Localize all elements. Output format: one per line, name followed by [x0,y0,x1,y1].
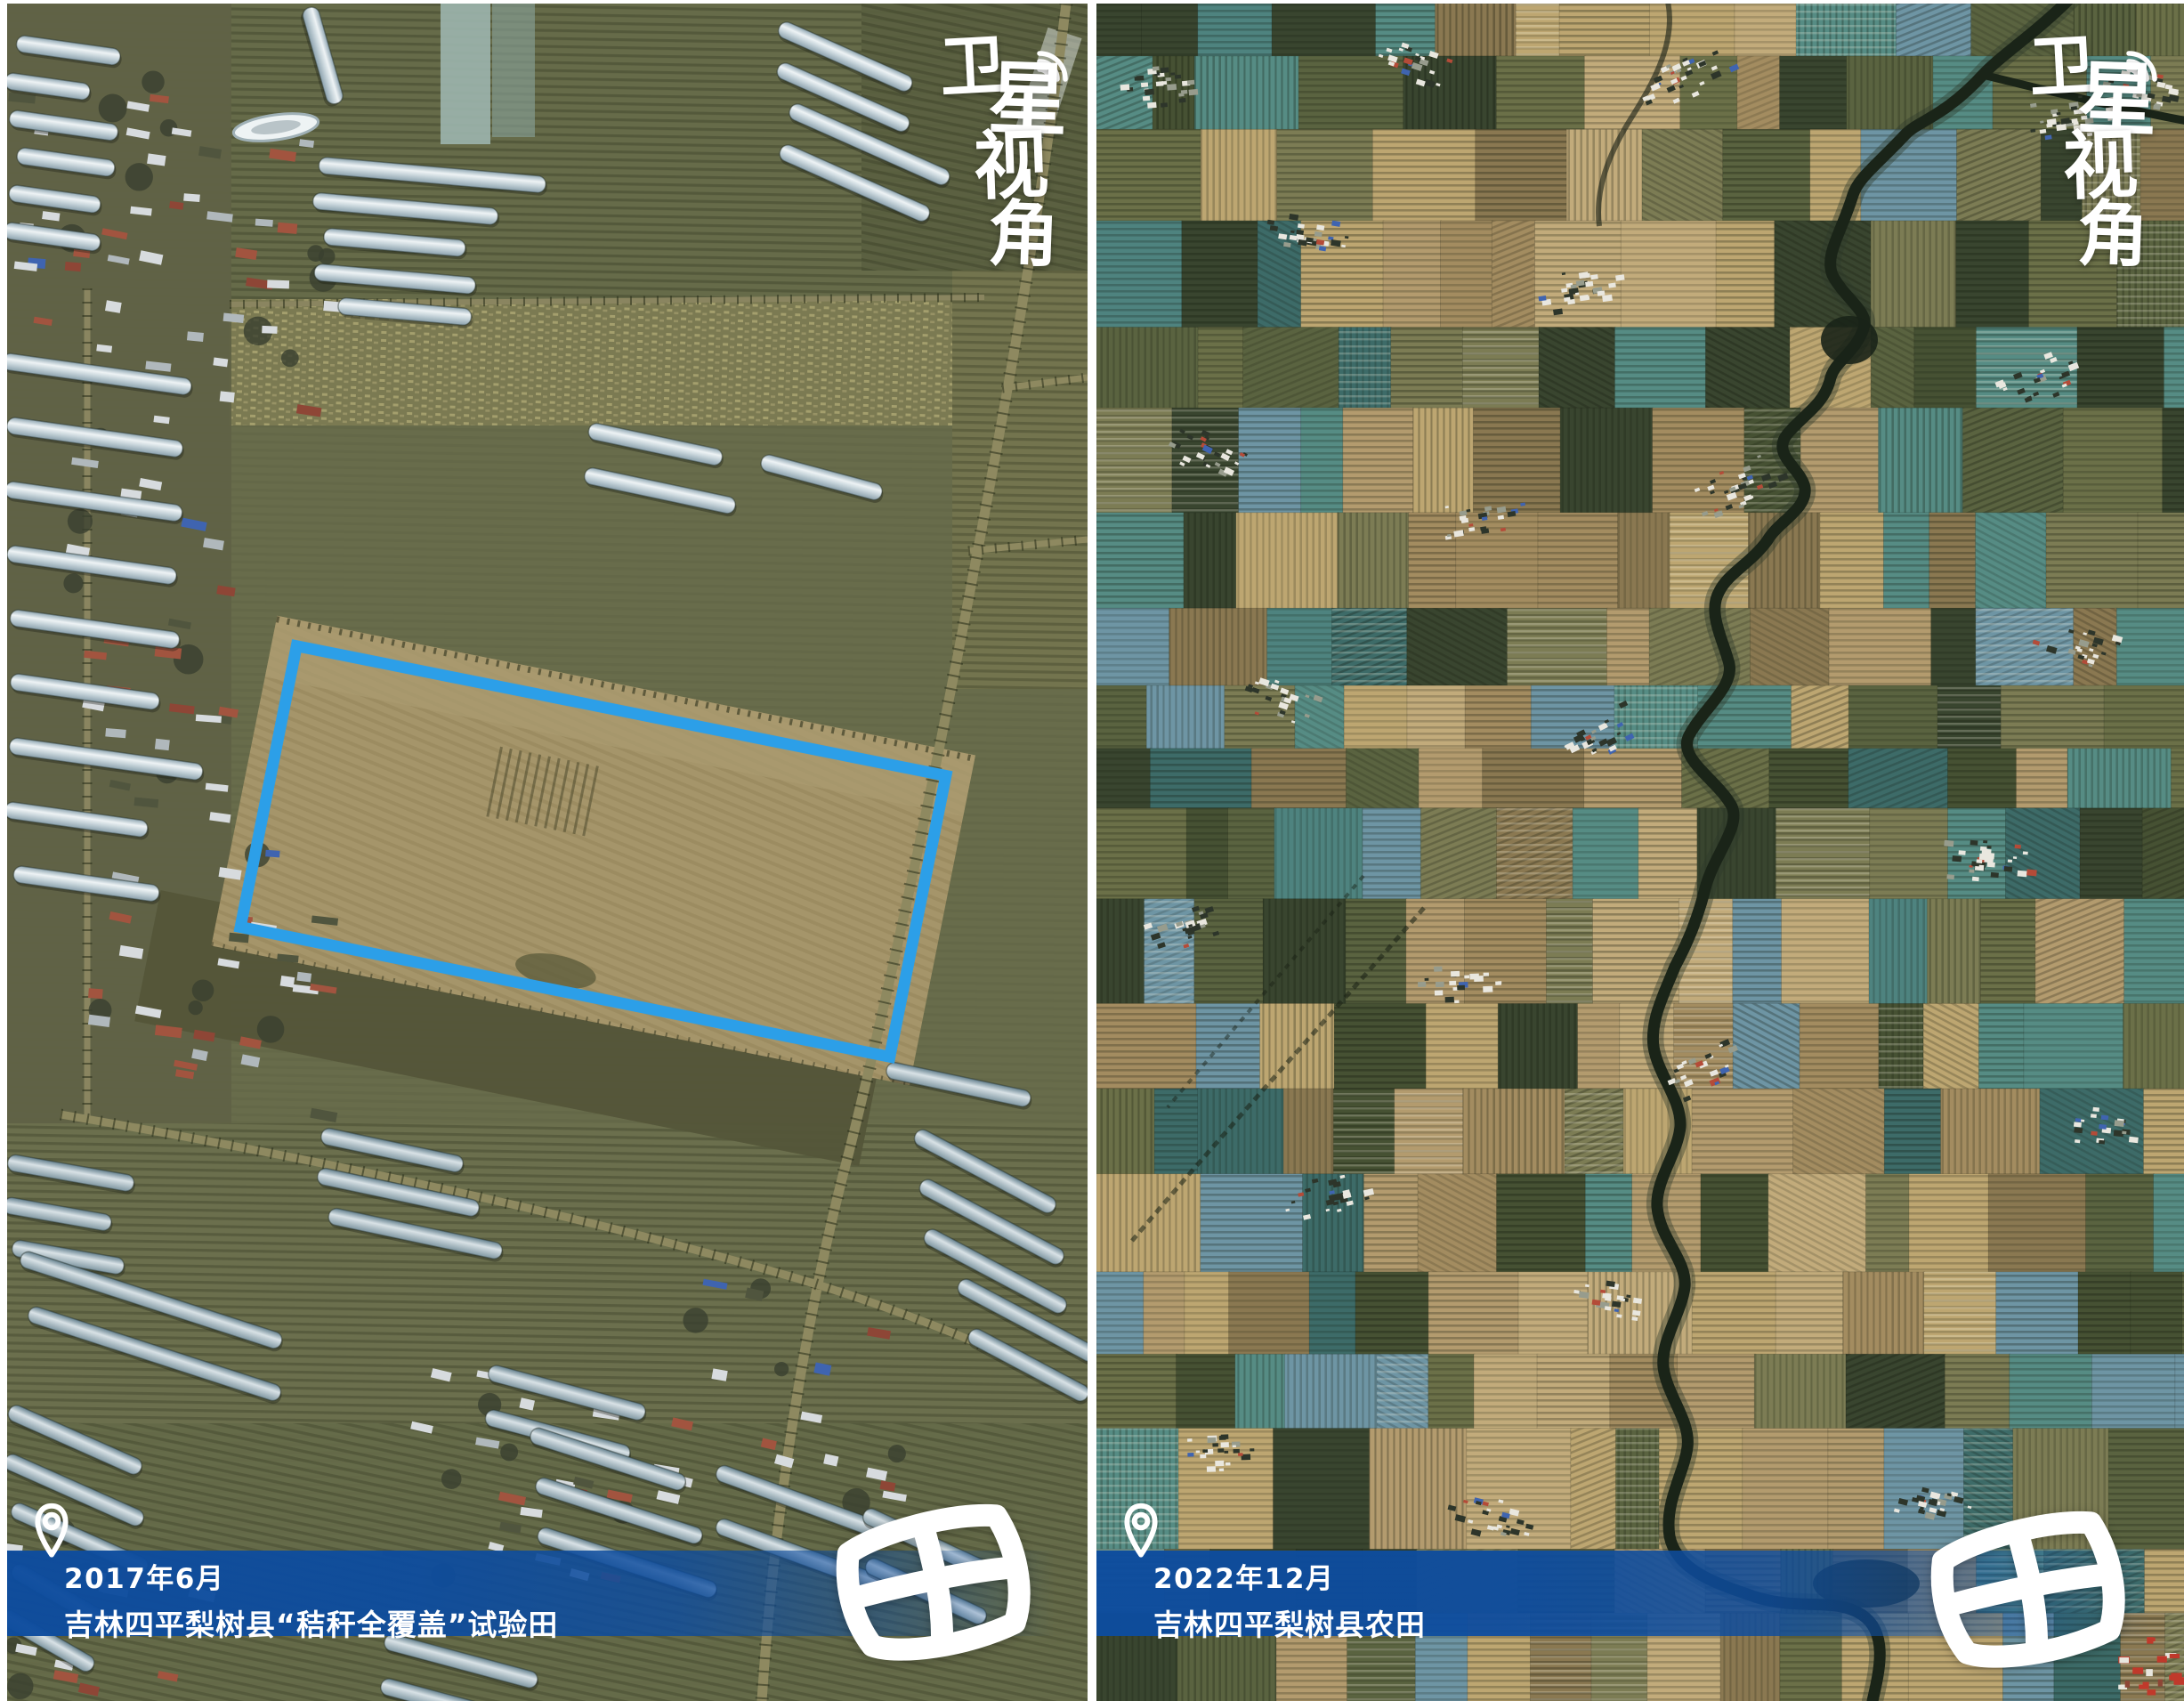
watermark-char: 角 [987,198,1061,272]
satellite-imagery-2022 [1096,4,2184,1701]
capture-date: 2017年6月 [64,1556,558,1596]
watermark-char: 角 [2076,198,2150,272]
tian-field-logo: 田 [1917,1510,2140,1673]
capture-date: 2022年12月 [1153,1556,1426,1596]
caption-text: 吉林四平梨树县农田 [1153,1601,1426,1644]
comparison-graphic: 卫 星 视 角 2017年6月 吉林四平梨树县“秸秆全覆盖”试验田 [0,0,2184,1701]
panel-2017: 卫 星 视 角 2017年6月 吉林四平梨树县“秸秆全覆盖”试验田 [7,4,1088,1701]
caption-text: 吉林四平梨树县“秸秆全覆盖”试验田 [64,1601,558,1644]
tian-field-logo: 田 [822,1503,1045,1666]
panel-2022: 卫 星 视 角 2022年12月 吉林四平梨树县农田 [1096,4,2184,1701]
